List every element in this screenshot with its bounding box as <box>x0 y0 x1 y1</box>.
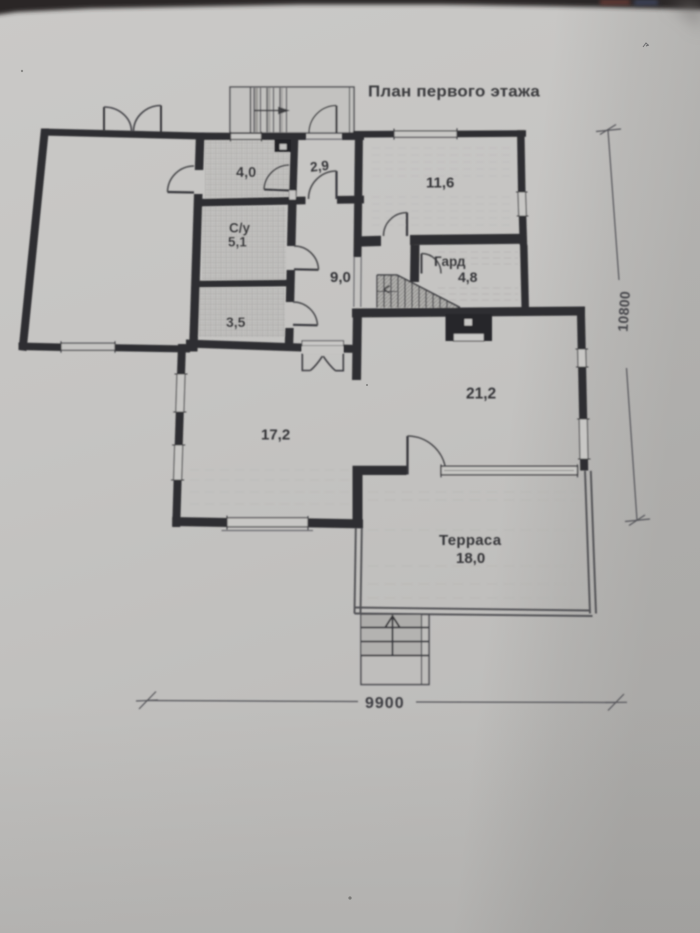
svg-text:План первого этажа: План первого этажа <box>368 84 540 101</box>
svg-text:10800: 10800 <box>615 290 633 332</box>
svg-text:Терраса: Терраса <box>439 532 502 549</box>
svg-text:3,5: 3,5 <box>226 314 246 330</box>
svg-text:Гард: Гард <box>434 254 466 269</box>
svg-text:17,2: 17,2 <box>261 427 290 444</box>
svg-text:9,0: 9,0 <box>330 269 351 286</box>
svg-text:С/у: С/у <box>229 221 251 236</box>
svg-text:18,0: 18,0 <box>456 550 485 567</box>
svg-text:11,6: 11,6 <box>426 175 454 192</box>
svg-text:2,9: 2,9 <box>309 158 329 175</box>
svg-text:4,0: 4,0 <box>236 165 256 181</box>
svg-text:4,8: 4,8 <box>458 269 478 285</box>
svg-text:5,1: 5,1 <box>228 235 247 250</box>
svg-text:21,2: 21,2 <box>466 386 496 403</box>
svg-text:9900: 9900 <box>365 695 405 712</box>
